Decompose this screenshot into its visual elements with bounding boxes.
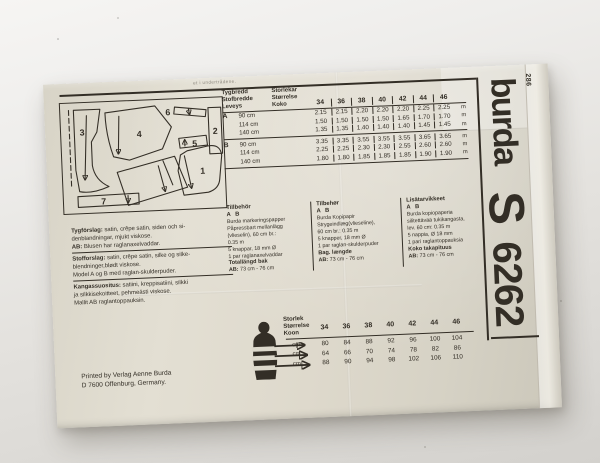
grainline-arrow-icon xyxy=(82,116,89,180)
body-measure-value: 86 xyxy=(446,344,468,352)
fabric-yardage-value: 1.90 xyxy=(415,150,436,158)
header-line: Koon xyxy=(284,330,310,338)
body-measure-value: 80 xyxy=(314,340,336,348)
unit-label: m xyxy=(456,149,468,155)
fabric-yardage-value: 1.70 xyxy=(413,113,434,121)
body-measure-value: 104 xyxy=(446,334,468,342)
body-measure-value: 94 xyxy=(359,357,381,365)
dust-speck xyxy=(560,300,562,302)
dust-speck xyxy=(424,446,426,448)
fabric-yardage-value: 1.35 xyxy=(331,125,352,133)
fabric-yardage-value: 3.55 xyxy=(373,135,394,143)
dust-speck xyxy=(57,38,59,40)
fabric-width-label: 114 cm xyxy=(239,121,259,129)
body-measure-value: 84 xyxy=(336,339,358,347)
fabric-width-label: 90 cm xyxy=(240,141,257,149)
spacer-cell xyxy=(272,113,310,115)
unit-label: cm xyxy=(292,351,314,358)
unit-column-header xyxy=(453,80,466,101)
fabric-yardage-value: 2.25 xyxy=(413,105,434,113)
spacer-cell xyxy=(273,130,311,132)
pattern-piece-number: 7 xyxy=(101,196,106,206)
fabric-yardage-value: 3.35 xyxy=(312,138,333,146)
fabric-yardage-value: 1.40 xyxy=(372,123,393,131)
body-measure-value: 90 xyxy=(337,358,359,366)
size-column-label: 36 xyxy=(335,323,357,331)
fabric-yardage-value: 1.45 xyxy=(413,122,434,130)
fabric-yardage-value: 1.65 xyxy=(393,114,414,122)
fabric-table-body: A90 cm2.152.152.202.202.202.252.25m114 c… xyxy=(222,103,468,170)
view-letter: B xyxy=(224,142,233,149)
fabric-yardage-value: 1.85 xyxy=(394,151,415,159)
fabric-width-label: 114 cm xyxy=(240,149,260,157)
fabric-yardage-value: 2.60 xyxy=(414,142,435,150)
fabric-width-label: 140 cm xyxy=(239,129,259,137)
advice-text: Mallit AB raglantoppauksin. xyxy=(74,298,145,307)
size-column-label: 42 xyxy=(392,95,413,104)
body-measure-value: 66 xyxy=(336,349,358,357)
fabric-yardage-value: 2.30 xyxy=(373,144,394,152)
body-measure-value: 70 xyxy=(358,348,380,356)
fabric-yardage-value: 2.15 xyxy=(331,108,352,116)
unit-label: m xyxy=(454,104,466,110)
notions-column: TilbehørA BBurda KopipapirStrygeindlæg(v… xyxy=(310,198,403,271)
pattern-piece-number: 5 xyxy=(192,138,197,148)
size-column-label: 46 xyxy=(445,318,467,326)
fabric-width-label: 140 cm xyxy=(240,158,260,166)
envelope-right-fold xyxy=(525,64,562,409)
body-measure-value: 98 xyxy=(381,356,403,364)
size-column-label: 46 xyxy=(433,93,454,102)
back-length-views: AB: xyxy=(229,267,239,273)
grainline-arrow-icon xyxy=(158,166,165,192)
fabric-yardage-value: 1.35 xyxy=(311,126,332,134)
fabric-yardage-value: 2.25 xyxy=(433,104,454,112)
unit-label: cm xyxy=(293,361,315,368)
fabric-yardage-value: 2.25 xyxy=(332,145,353,153)
pattern-piece-number: 3 xyxy=(79,127,84,137)
fabric-width-label: 90 cm xyxy=(238,112,255,120)
body-table-rows: cm8084889296100104cm64667074788286cm8890… xyxy=(292,333,469,369)
pattern-number: 6262 xyxy=(486,241,530,328)
spacer-cell xyxy=(274,150,312,152)
fabric-yardage-value: 2.15 xyxy=(310,109,331,117)
seam-line xyxy=(163,160,173,185)
grainline-arrow-icon xyxy=(117,116,121,153)
body-measure-value: 96 xyxy=(402,336,424,344)
body-measure-value: 110 xyxy=(447,354,469,362)
pattern-piece-number: 4 xyxy=(137,129,142,139)
back-length-views: AB: xyxy=(408,253,418,259)
fabric-yardage-value: 1.45 xyxy=(434,121,455,129)
body-measure-value: 78 xyxy=(402,346,424,354)
size-column-label: 42 xyxy=(401,320,423,328)
fabric-yardage-value: 2.30 xyxy=(353,144,374,152)
body-measure-value: 64 xyxy=(314,350,336,358)
spacer-cell xyxy=(274,159,312,161)
fabric-width-header: Tygbredd Stofbredde Leveys xyxy=(221,88,272,111)
fabric-row-label: 140 cm xyxy=(223,128,273,137)
pattern-piece-outline xyxy=(117,156,189,206)
notions-column: LisätarvikkeetA BBurda kopiopaperiasilit… xyxy=(400,195,477,267)
fabric-yardage-value: 1.50 xyxy=(331,117,352,125)
size-column-label: 40 xyxy=(371,96,392,105)
body-measure-value: 88 xyxy=(315,359,337,367)
fabric-yardage-value: 2.20 xyxy=(351,107,372,115)
fabric-yardage-value: 2.20 xyxy=(372,107,393,115)
body-measure-value: 100 xyxy=(424,335,446,343)
fabric-yardage-value: 2.60 xyxy=(435,141,456,149)
body-measure-value: 106 xyxy=(425,355,447,363)
view-letter: A xyxy=(222,113,231,120)
fabric-yardage-value: 2.20 xyxy=(392,106,413,114)
dust-speck xyxy=(117,17,119,19)
fabric-yardage-value: 3.65 xyxy=(414,133,435,141)
body-measure-value: 92 xyxy=(380,337,402,345)
header-line: Koko xyxy=(272,100,310,108)
notions-column: TillbehörA BBurda markeringspapperPåpres… xyxy=(226,202,313,275)
size-letter: S xyxy=(481,190,532,225)
size-column-label: 34 xyxy=(310,98,331,107)
pattern-piece-outline xyxy=(173,106,206,118)
size-header: Storlekar Størrelse Koko xyxy=(271,87,310,109)
advice-group: Kangassuositus: satiini, kreppisatiini, … xyxy=(73,277,234,308)
body-measure-value: 74 xyxy=(380,347,402,355)
photo-background: et i undertrådene. 3 4 6 xyxy=(0,0,600,463)
fabric-yardage-value: 2.25 xyxy=(312,146,333,154)
unit-label: m xyxy=(454,112,466,118)
fabric-yardage-value: 1.85 xyxy=(353,153,374,161)
unit-label: m xyxy=(455,141,467,147)
fabric-yardage-value: 1.40 xyxy=(352,124,373,132)
size-column-label: 34 xyxy=(313,324,335,332)
spacer-cell xyxy=(273,122,311,124)
size-column-label: 44 xyxy=(412,94,433,103)
fabric-yardage-value: 1.50 xyxy=(352,116,373,124)
printer-credit: Printed by Verlag Aenne Burda D 7600 Off… xyxy=(81,370,172,391)
body-measure-value: 82 xyxy=(424,345,446,353)
size-column-label: 40 xyxy=(379,321,401,329)
pattern-pieces-drawing: 3 4 6 2 5 1 7 xyxy=(60,97,226,214)
pattern-envelope-back: et i undertrådene. 3 4 6 xyxy=(43,64,562,429)
fabric-yardage-value: 2.55 xyxy=(394,143,415,151)
fabric-row-label: 140 cm xyxy=(224,157,274,166)
fabric-yardage-value: 3.65 xyxy=(434,133,455,141)
fabric-yardage-value: 1.70 xyxy=(434,112,455,120)
spacer-cell xyxy=(274,142,312,144)
fabric-yardage-value: 3.55 xyxy=(393,134,414,142)
header-line: Leveys xyxy=(222,102,272,111)
unit-label: m xyxy=(454,121,466,127)
fabric-yardage-value: 3.55 xyxy=(352,136,373,144)
body-measurement-table: Storlek Størrelse Koon 34363840424446 cm… xyxy=(249,309,482,385)
notions-columns: TillbehörA BBurda markeringspapperPåpres… xyxy=(226,195,477,275)
size-column-label: 38 xyxy=(351,97,372,106)
fabric-yardage-value: 1.90 xyxy=(435,149,456,157)
fabric-quantity-table: Tygbredd Stofbredde Leveys Storlekar Stø… xyxy=(221,80,468,170)
fabric-yardage-value: 1.80 xyxy=(333,154,354,162)
fabric-advice-text: Tygförslag: satin, crêpe satin, siden oc… xyxy=(71,221,234,308)
body-table-sizes: 34363840424446 xyxy=(313,318,467,331)
fabric-yardage-value: 1.40 xyxy=(393,122,414,130)
pattern-piece-number: 6 xyxy=(165,107,170,117)
edition-code: 286 xyxy=(524,73,532,86)
pattern-piece-number: 2 xyxy=(213,126,218,136)
top-edge-text: et i undertrådene. xyxy=(193,79,236,86)
body-table-header: Storlek Størrelse Koon xyxy=(283,316,310,338)
fabric-yardage-value: 1.50 xyxy=(372,115,393,123)
body-measure-value: 88 xyxy=(358,338,380,346)
fabric-yardage-value: 1.85 xyxy=(374,152,395,160)
fabric-yardage-value: 1.80 xyxy=(312,155,333,163)
size-column-label: 36 xyxy=(330,98,351,107)
brand-logo: burda xyxy=(485,77,523,165)
pattern-number-underline xyxy=(491,335,539,339)
fabric-yardage-value: 3.35 xyxy=(332,137,353,145)
fabric-yardage-value: 1.50 xyxy=(311,117,332,125)
size-column-label: 38 xyxy=(357,322,379,330)
grainline-arrow-icon xyxy=(188,108,189,114)
pattern-piece-number: 1 xyxy=(200,166,205,176)
pattern-piece-outline xyxy=(73,109,109,193)
cutting-layout-diagram: 3 4 6 2 5 1 7 xyxy=(59,96,228,215)
size-column-label: 44 xyxy=(423,319,445,327)
unit-label: m xyxy=(455,133,467,139)
fold-line xyxy=(68,111,71,190)
unit-label: cm xyxy=(292,341,314,348)
body-measure-value: 102 xyxy=(403,355,425,363)
back-length-views: AB: xyxy=(318,256,328,262)
